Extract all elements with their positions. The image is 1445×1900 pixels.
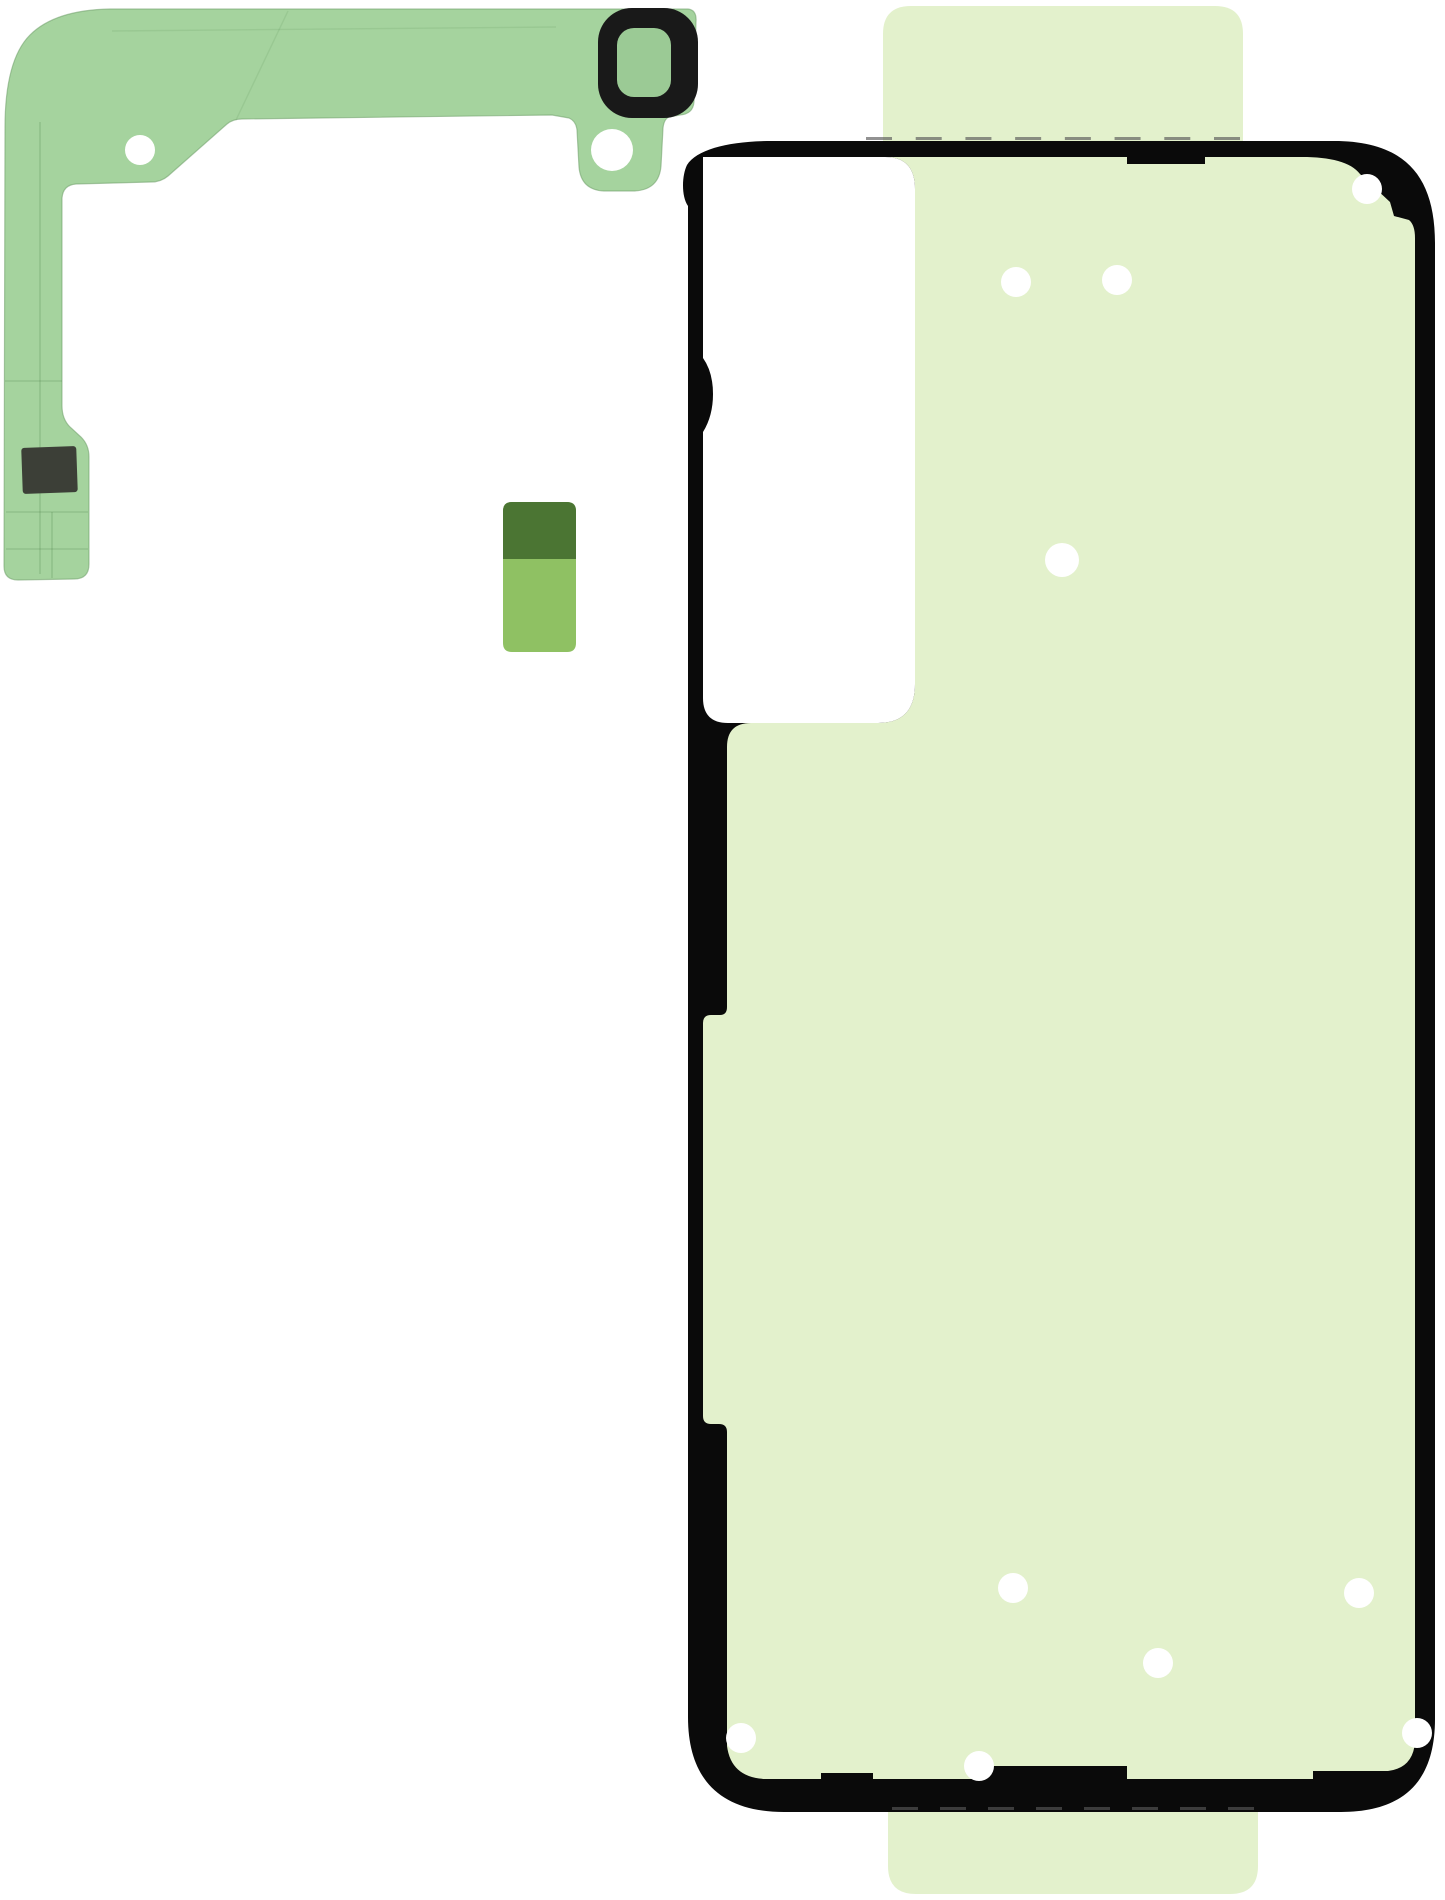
perforation-dash: [965, 137, 991, 140]
adhesive-kit-canvas: [0, 0, 1445, 1900]
strip-body: [4, 9, 696, 580]
pull-tab-patch: [21, 446, 78, 494]
camera-ring-opening: [617, 28, 671, 97]
perforation-dash: [1228, 1807, 1254, 1810]
perforation-dash: [940, 1807, 966, 1810]
alignment-dot: [1344, 1578, 1374, 1608]
camera-frame-adhesive-strip: [4, 8, 698, 580]
camera-ring-adhesive: [598, 8, 698, 118]
alignment-dot: [1102, 265, 1132, 295]
perforation-dash: [1065, 137, 1091, 140]
perforation-dash: [1015, 137, 1041, 140]
perforation-dash: [866, 137, 892, 140]
perforation-dash: [1084, 1807, 1110, 1810]
perforation-dash: [1036, 1807, 1062, 1810]
perforation-dash: [988, 1807, 1014, 1810]
alignment-dot: [1352, 174, 1382, 204]
alignment-dot: [964, 1751, 994, 1781]
sticker-dark-part: [503, 502, 576, 559]
alignment-dot: [1045, 543, 1079, 577]
perforation-dash: [916, 137, 942, 140]
strip-hole: [125, 135, 155, 165]
alignment-dot: [726, 1723, 756, 1753]
back-cover-adhesive-sheet: [683, 6, 1435, 1894]
adhesive-kit-photo: [0, 0, 1445, 1900]
spare-adhesive-sticker: [503, 502, 576, 652]
liner-bottom-tab: [888, 1802, 1258, 1894]
alignment-dot: [1143, 1648, 1173, 1678]
perforation-dash: [1132, 1807, 1158, 1810]
alignment-dot: [1402, 1718, 1432, 1748]
camera-slot-cutout: [703, 157, 915, 723]
alignment-dot: [998, 1573, 1028, 1603]
perforation-dash: [1115, 137, 1141, 140]
strip-hole: [591, 129, 633, 171]
alignment-dot: [1001, 267, 1031, 297]
perforation-dash: [1214, 137, 1240, 140]
perforation-dash: [1164, 137, 1190, 140]
perforation-dash: [892, 1807, 918, 1810]
perforation-dash: [1180, 1807, 1206, 1810]
